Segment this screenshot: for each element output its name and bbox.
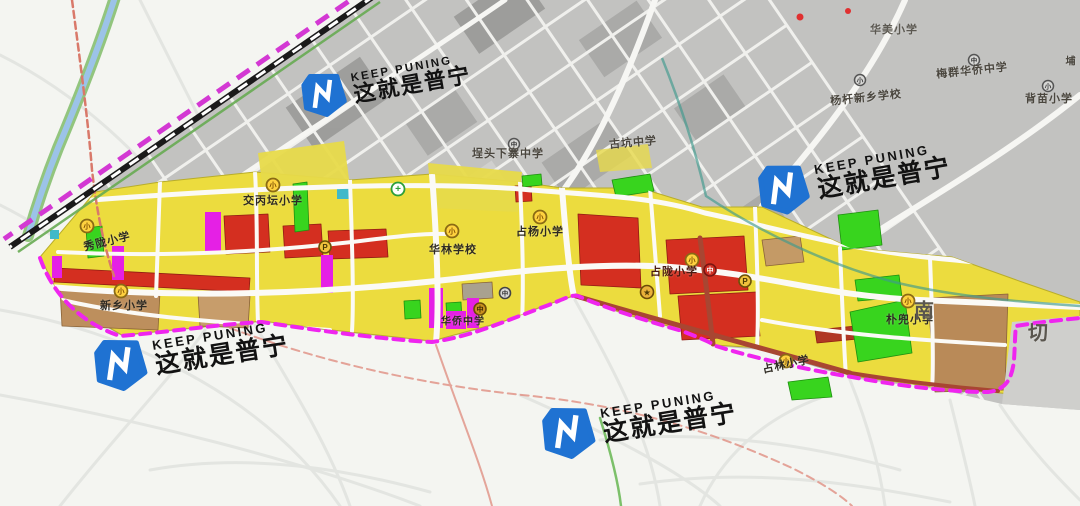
- svg-text:小: 小: [269, 181, 277, 190]
- puning-logo-icon: [88, 334, 150, 396]
- label-zhanyang-primary: 占杨小学: [516, 223, 564, 239]
- svg-text:小: 小: [536, 213, 544, 222]
- parking-icon: P: [319, 241, 331, 253]
- label-hualin-school: 华林学校: [429, 241, 477, 257]
- puning-logo-icon: [752, 159, 812, 219]
- puning-logo-icon: [536, 402, 598, 464]
- label-huamei-primary: 华美小学: [870, 21, 918, 37]
- red-marker-icon: [797, 14, 804, 21]
- hospital-icon: +: [392, 183, 405, 196]
- puning-logo-icon: [296, 68, 349, 121]
- svg-text:P: P: [742, 277, 748, 286]
- parking-icon: P: [739, 275, 751, 287]
- svg-text:小: 小: [83, 222, 91, 231]
- label-nan: 南: [914, 295, 934, 324]
- svg-text:小: 小: [448, 227, 456, 236]
- puning-planning-map: 小 小 小 小 小 小 小 小 中 中 中 中 中 小 小 P P + ★ 交丙…: [0, 0, 1080, 506]
- label-zhanlong-primary: 占陇小学: [650, 263, 698, 279]
- svg-text:小: 小: [856, 75, 864, 84]
- school-icon: 小: [534, 211, 547, 224]
- red-marker-icon: [845, 8, 851, 14]
- middle-school-icon: 中: [500, 288, 511, 299]
- label-jiaobingtan-primary: 交丙坛小学: [243, 192, 303, 208]
- svg-text:+: +: [395, 184, 401, 195]
- svg-text:P: P: [322, 243, 328, 252]
- svg-text:小: 小: [904, 297, 912, 306]
- school-icon: 小: [267, 179, 280, 192]
- label-xinxiang-primary: 新乡小学: [100, 297, 148, 313]
- school-icon: 小: [446, 225, 459, 238]
- school-icon: 小: [81, 220, 94, 233]
- svg-text:小: 小: [117, 287, 125, 296]
- school-icon: 小: [902, 295, 915, 308]
- school-icon: 小: [855, 75, 866, 86]
- label-chengtou-xiazhai-middle: 埕头下寨中学: [472, 145, 544, 161]
- star-icon: ★: [641, 286, 654, 299]
- middle-school-icon: 中: [704, 264, 716, 276]
- label-qie: 切: [1028, 317, 1048, 346]
- label-huaqiao-middle: 华侨中学: [441, 313, 485, 328]
- label-beimiao-primary: 背苗小学: [1025, 90, 1073, 106]
- school-icon: 小: [115, 285, 128, 298]
- label-pu: 埔: [1066, 53, 1077, 68]
- svg-text:中: 中: [502, 288, 509, 297]
- svg-text:中: 中: [707, 266, 714, 275]
